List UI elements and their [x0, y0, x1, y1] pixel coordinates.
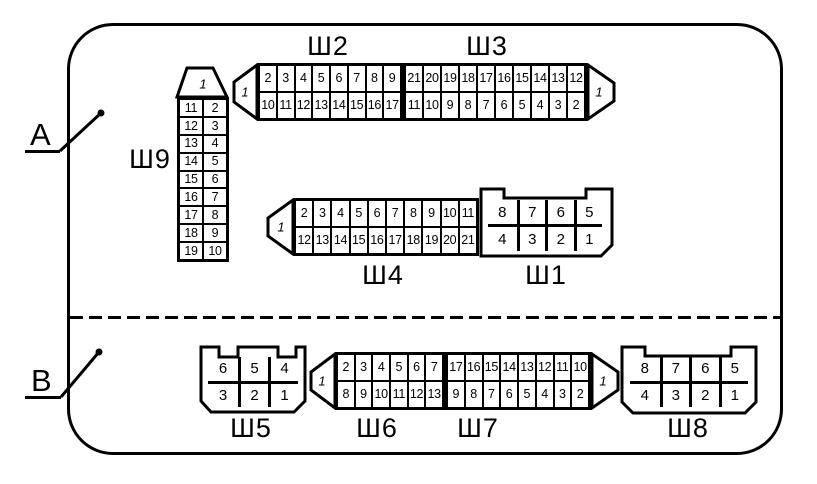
sh4-top-row: 234567891011: [296, 201, 476, 226]
pin-cell: 1: [719, 384, 749, 408]
pin-cell: 7: [387, 201, 403, 226]
pin-cell: 8: [488, 200, 517, 224]
pin-cell: 14: [501, 355, 517, 380]
pin-cell: 6: [204, 172, 226, 188]
pin-cell: 7: [478, 93, 494, 118]
pin-cell: 5: [514, 93, 530, 118]
sh7-bottom-row: 98765432: [448, 382, 588, 407]
sh6-pin-block: 234567 8910111213: [338, 355, 442, 407]
pin-cell: 19: [442, 66, 458, 91]
pin-cell: 10: [373, 382, 389, 407]
pin-cell: 8: [338, 382, 354, 407]
section-b-underline: [25, 396, 61, 399]
sh3-top-row: 21201918171615141312: [406, 66, 584, 91]
sh7-top-row: 1716151413121110: [448, 355, 588, 380]
pin-cell: 20: [442, 228, 458, 253]
sh2-pin-block: 23456789 1011121314151617: [260, 66, 400, 118]
pin-cell: 2: [238, 384, 268, 408]
sh1-label: Ш1: [525, 262, 567, 289]
pin-cell: 13: [180, 136, 202, 152]
pin-cell: 5: [719, 357, 749, 381]
pin-cell: 6: [208, 357, 238, 381]
pin-cell: 1: [574, 227, 603, 251]
sh1-pin-grid: 8765 4321: [488, 200, 602, 251]
pin-cell: 10: [260, 93, 276, 118]
pin-cell: 2: [338, 355, 354, 380]
sh9-pin-1: 1: [199, 78, 206, 91]
pin-cell: 9: [204, 225, 226, 241]
pin-cell: 5: [204, 154, 226, 170]
sh3-pin-1: 1: [595, 86, 602, 99]
pin-cell: 14: [331, 93, 347, 118]
section-a-underline: [25, 150, 60, 153]
pin-cell: 9: [423, 201, 439, 226]
pin-cell: 11: [180, 100, 202, 116]
pin-cell: 6: [496, 93, 512, 118]
pin-cell: 8: [630, 357, 660, 381]
sh4-pin-block: 234567891011 12131415161718192021: [296, 201, 476, 253]
sh7-pin-1: 1: [599, 375, 606, 388]
pin-cell: 10: [204, 243, 226, 259]
pin-cell: 4: [488, 227, 517, 251]
pin-cell: 2: [204, 100, 226, 116]
pin-cell: 13: [550, 66, 566, 91]
pin-cell: 7: [349, 66, 365, 91]
pin-cell: 16: [466, 355, 482, 380]
pin-cell: 5: [351, 201, 367, 226]
pin-cell: 6: [409, 355, 425, 380]
sh5-top-row: 654: [208, 357, 298, 384]
sh2-bottom-row: 1011121314151617: [260, 93, 400, 118]
pin-cell: 11: [460, 201, 476, 226]
pin-cell: 3: [314, 201, 330, 226]
pin-cell: 2: [689, 384, 719, 408]
pin-cell: 4: [296, 66, 312, 91]
sh4-body: 234567891011 12131415161718192021: [293, 198, 479, 256]
pin-cell: 12: [409, 382, 425, 407]
pin-cell: 8: [460, 93, 476, 118]
pin-cell: 10: [572, 355, 588, 380]
sh4-bottom-row: 12131415161718192021: [296, 228, 476, 253]
pin-cell: 5: [519, 382, 535, 407]
pin-cell: 12: [568, 66, 584, 91]
pin-cell: 3: [204, 118, 226, 134]
pin-cell: 10: [424, 93, 440, 118]
pin-cell: 8: [204, 207, 226, 223]
sh3-pin-block: 21201918171615141312 111098765432: [406, 66, 584, 118]
pin-cell: 15: [180, 172, 202, 188]
sh8-bottom-row: 4321: [630, 384, 748, 408]
pin-cell: 5: [574, 200, 603, 224]
sh6-bottom-row: 8910111213: [338, 382, 442, 407]
pin-cell: 13: [519, 355, 535, 380]
sh5-bottom-row: 321: [208, 384, 298, 408]
pin-cell: 4: [268, 357, 298, 381]
pin-cell: 7: [517, 200, 546, 224]
sh6-sh7-body: 234567 8910111213 1716151413121110 98765…: [335, 352, 591, 410]
pin-cell: 12: [180, 118, 202, 134]
sh2-top-row: 23456789: [260, 66, 400, 91]
pin-cell: 6: [331, 66, 347, 91]
sh3-bottom-row: 111098765432: [406, 93, 584, 118]
sh9-pin-grid: 1121231341451561671781891910: [180, 100, 226, 259]
pin-cell: 17: [387, 228, 403, 253]
pin-cell: 21: [460, 228, 476, 253]
pin-cell: 5: [391, 355, 407, 380]
sh8-label: Ш8: [667, 415, 709, 442]
sh1-top-row: 8765: [488, 200, 602, 227]
pin-cell: 8: [367, 66, 383, 91]
pin-cell: 9: [448, 382, 464, 407]
pin-cell: 14: [532, 66, 548, 91]
pin-cell: 12: [296, 228, 312, 253]
sh1-bottom-row: 4321: [488, 227, 602, 251]
pin-cell: 13: [313, 93, 329, 118]
pin-cell: 10: [442, 201, 458, 226]
sh8-top-row: 8765: [630, 357, 748, 384]
pin-cell: 2: [568, 93, 584, 118]
pin-cell: 4: [332, 201, 348, 226]
pin-cell: 13: [426, 382, 442, 407]
sh6-top-row: 234567: [338, 355, 442, 380]
pin-cell: 18: [460, 66, 476, 91]
pin-cell: 9: [442, 93, 458, 118]
pin-cell: 16: [367, 93, 383, 118]
pin-cell: 8: [466, 382, 482, 407]
pin-cell: 7: [660, 357, 690, 381]
pin-cell: 15: [484, 355, 500, 380]
wiring-connector-diagram: A B 1 1121231341451561671781891910 Ш9 Ш2…: [0, 0, 817, 484]
pin-cell: 19: [423, 228, 439, 253]
pin-cell: 16: [369, 228, 385, 253]
pin-cell: 4: [204, 136, 226, 152]
pin-cell: 14: [332, 228, 348, 253]
pin-cell: 13: [314, 228, 330, 253]
pin-cell: 3: [356, 355, 372, 380]
pin-cell: 3: [550, 93, 566, 118]
sh5-pin-grid: 654 321: [208, 357, 298, 407]
pin-cell: 7: [426, 355, 442, 380]
pin-cell: 7: [484, 382, 500, 407]
pin-cell: 8: [405, 201, 421, 226]
pin-cell: 2: [572, 382, 588, 407]
sh7-label: Ш7: [457, 415, 499, 442]
pin-cell: 18: [405, 228, 421, 253]
pin-cell: 3: [278, 66, 294, 91]
pin-cell: 17: [478, 66, 494, 91]
pin-cell: 15: [349, 93, 365, 118]
pin-cell: 4: [373, 355, 389, 380]
pin-cell: 21: [406, 66, 422, 91]
pin-cell: 15: [351, 228, 367, 253]
sh6-pin-1: 1: [318, 375, 325, 388]
pin-cell: 4: [532, 93, 548, 118]
pin-cell: 6: [545, 200, 574, 224]
pin-cell: 17: [448, 355, 464, 380]
pin-cell: 9: [384, 66, 400, 91]
pin-cell: 4: [537, 382, 553, 407]
sh2-pin-1: 1: [241, 86, 248, 99]
pin-cell: 12: [537, 355, 553, 380]
pin-cell: 19: [180, 243, 202, 259]
pin-cell: 4: [630, 384, 660, 408]
sh6-label: Ш6: [356, 415, 398, 442]
sh9-body: 1121231341451561671781891910: [177, 97, 229, 262]
sh4-label: Ш4: [362, 262, 404, 289]
pin-cell: 15: [514, 66, 530, 91]
sh5-label: Ш5: [230, 415, 272, 442]
sh4-pin-1: 1: [277, 221, 284, 234]
pin-cell: 14: [180, 154, 202, 170]
pin-cell: 12: [296, 93, 312, 118]
pin-cell: 5: [313, 66, 329, 91]
pin-cell: 3: [517, 227, 546, 251]
pin-cell: 20: [424, 66, 440, 91]
pin-cell: 16: [180, 189, 202, 205]
sh9-label: Ш9: [129, 146, 171, 173]
pin-cell: 11: [391, 382, 407, 407]
pin-cell: 2: [545, 227, 574, 251]
pin-cell: 3: [660, 384, 690, 408]
section-b-label: B: [31, 365, 52, 396]
sh3-label: Ш3: [466, 33, 508, 60]
section-divider-dashed-line: [70, 316, 781, 319]
pin-cell: 1: [268, 384, 298, 408]
pin-cell: 5: [238, 357, 268, 381]
pin-cell: 6: [369, 201, 385, 226]
sh8-pin-grid: 8765 4321: [630, 357, 748, 407]
pin-cell: 11: [555, 355, 571, 380]
pin-cell: 11: [406, 93, 422, 118]
pin-cell: 2: [260, 66, 276, 91]
pin-cell: 3: [208, 384, 238, 408]
pin-cell: 18: [180, 225, 202, 241]
pin-cell: 9: [356, 382, 372, 407]
pin-cell: 11: [278, 93, 294, 118]
pin-cell: 7: [204, 189, 226, 205]
sh2-sh3-body: 23456789 1011121314151617 21201918171615…: [257, 63, 587, 121]
pin-cell: 17: [384, 93, 400, 118]
sh7-pin-block: 1716151413121110 98765432: [448, 355, 588, 407]
pin-cell: 2: [296, 201, 312, 226]
pin-cell: 3: [555, 382, 571, 407]
pin-cell: 17: [180, 207, 202, 223]
pin-cell: 6: [689, 357, 719, 381]
section-a-label: A: [30, 119, 51, 150]
pin-cell: 16: [496, 66, 512, 91]
sh2-label: Ш2: [307, 33, 349, 60]
pin-cell: 6: [501, 382, 517, 407]
